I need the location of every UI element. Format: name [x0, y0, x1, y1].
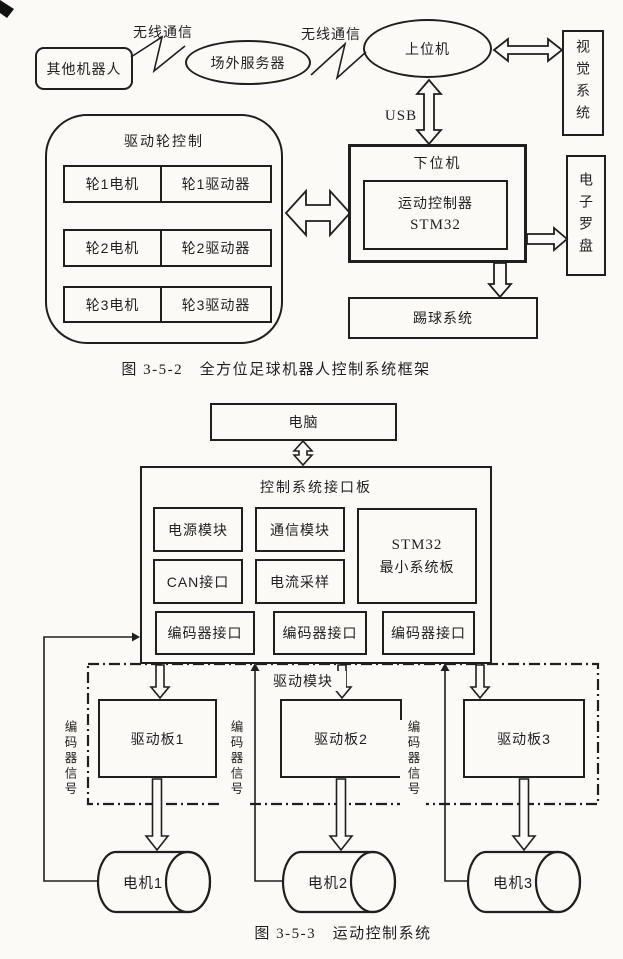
drive-module-label: 驱动模块 — [260, 671, 346, 691]
board2-to-motor2-arrow — [330, 779, 352, 850]
wheel-row-2: 轮2电机 轮2驱动器 — [63, 229, 272, 267]
scan-artifact — [0, 0, 14, 18]
node-drive-board-1: 驱动板1 — [98, 699, 217, 778]
wheel-row-1: 轮1电机 轮1驱动器 — [63, 165, 272, 203]
usb-double-arrow — [417, 80, 441, 144]
wireless-label-2: 无线通信 — [298, 25, 364, 43]
offsite-server-label: 场外服务器 — [211, 53, 286, 73]
node-current-sampling: 电流采样 — [255, 559, 345, 604]
encoder-signal-label-1: 编码器信号 — [57, 720, 83, 808]
motor2-label: 电机2 — [293, 870, 363, 894]
computer-board-double-arrow — [294, 441, 312, 465]
wheel3-motor-cell: 轮3电机 — [65, 288, 162, 321]
figure1-caption: 图 3-5-2 全方位足球机器人控制系统框架 — [60, 358, 492, 379]
node-drive-board-2: 驱动板2 — [280, 699, 402, 778]
node-computer: 电脑 — [210, 403, 397, 441]
kicking-system-label: 踢球系统 — [413, 308, 473, 328]
lower-computer-label: 下位机 — [348, 153, 527, 173]
wheel-row-3: 轮3电机 轮3驱动器 — [63, 286, 272, 323]
node-other-robots: 其他机器人 — [35, 47, 133, 90]
vision-system-label: 视觉系统 — [573, 39, 593, 127]
motor1-label: 电机1 — [108, 870, 178, 894]
drive-wheel-control-label: 驱动轮控制 — [45, 131, 283, 151]
node-electronic-compass: 电子罗盘 — [566, 155, 606, 276]
node-host-computer: 上位机 — [363, 19, 492, 78]
encoder-signal-text-1: 编码器信号 — [61, 720, 80, 798]
stm32-board-line2: 最小系统板 — [380, 557, 455, 578]
node-encoder-interface-1: 编码器接口 — [155, 611, 255, 655]
figure2-caption: 图 3-5-3 运动控制系统 — [160, 922, 526, 943]
compass-arrow — [527, 228, 567, 250]
other-robots-label: 其他机器人 — [47, 59, 122, 79]
encoder-to-board1-arrow — [151, 665, 169, 698]
wheel1-driver-cell: 轮1驱动器 — [162, 167, 270, 201]
node-kicking-system: 踢球系统 — [348, 297, 538, 339]
node-comm-module: 通信模块 — [255, 507, 345, 552]
node-motion-controller: 运动控制器 STM32 — [363, 180, 508, 250]
wireless-zigzag-link-1 — [131, 37, 185, 71]
host-vision-double-arrow — [494, 39, 562, 61]
board3-to-motor3-arrow — [513, 779, 535, 850]
interface-board-label: 控制系统接口板 — [140, 477, 492, 497]
wheel2-driver-cell: 轮2驱动器 — [162, 231, 270, 265]
wireless-label-1: 无线通信 — [130, 23, 196, 41]
encoder-signal-text-2: 编码器信号 — [227, 720, 246, 798]
motion-controller-line2: STM32 — [410, 214, 461, 237]
encoder-signal-label-2: 编码器信号 — [223, 720, 249, 808]
wireless-zigzag-link-2 — [311, 44, 366, 78]
node-power-module: 电源模块 — [153, 507, 243, 552]
node-encoder-interface-2: 编码器接口 — [273, 611, 367, 655]
node-drive-board-3: 驱动板3 — [463, 699, 585, 778]
motion-controller-line1: 运动控制器 — [398, 193, 473, 214]
node-encoder-interface-3: 编码器接口 — [382, 611, 475, 655]
electronic-compass-label: 电子罗盘 — [576, 172, 596, 260]
node-stm32-board: STM32 最小系统板 — [357, 508, 477, 604]
wheel3-driver-cell: 轮3驱动器 — [162, 288, 270, 321]
encoder-feedback-line-2 — [255, 669, 283, 881]
motor3-label: 电机3 — [478, 870, 548, 894]
wheel2-motor-cell: 轮2电机 — [65, 231, 162, 265]
scanned-diagram-page: 其他机器人 无线通信 场外服务器 无线通信 上位机 视觉系统 USB 下位机 运… — [0, 0, 623, 959]
wheel1-motor-cell: 轮1电机 — [65, 167, 162, 201]
node-can-interface: CAN接口 — [153, 559, 243, 604]
board1-to-motor1-arrow — [146, 779, 168, 850]
usb-label: USB — [382, 107, 420, 125]
wheels-lower-double-arrow — [286, 191, 350, 235]
encoder-feedback-arrowhead-1 — [132, 633, 140, 642]
encoder-signal-label-3: 编码器信号 — [400, 720, 426, 808]
stm32-board-line1: STM32 — [392, 534, 443, 557]
host-computer-label: 上位机 — [405, 39, 450, 59]
node-offsite-server: 场外服务器 — [185, 40, 311, 85]
encoder-to-board3-arrow — [471, 665, 489, 698]
node-vision-system: 视觉系统 — [562, 30, 604, 136]
computer-label: 电脑 — [289, 412, 319, 432]
kick-system-arrow — [489, 263, 511, 297]
encoder-signal-text-3: 编码器信号 — [404, 720, 423, 798]
